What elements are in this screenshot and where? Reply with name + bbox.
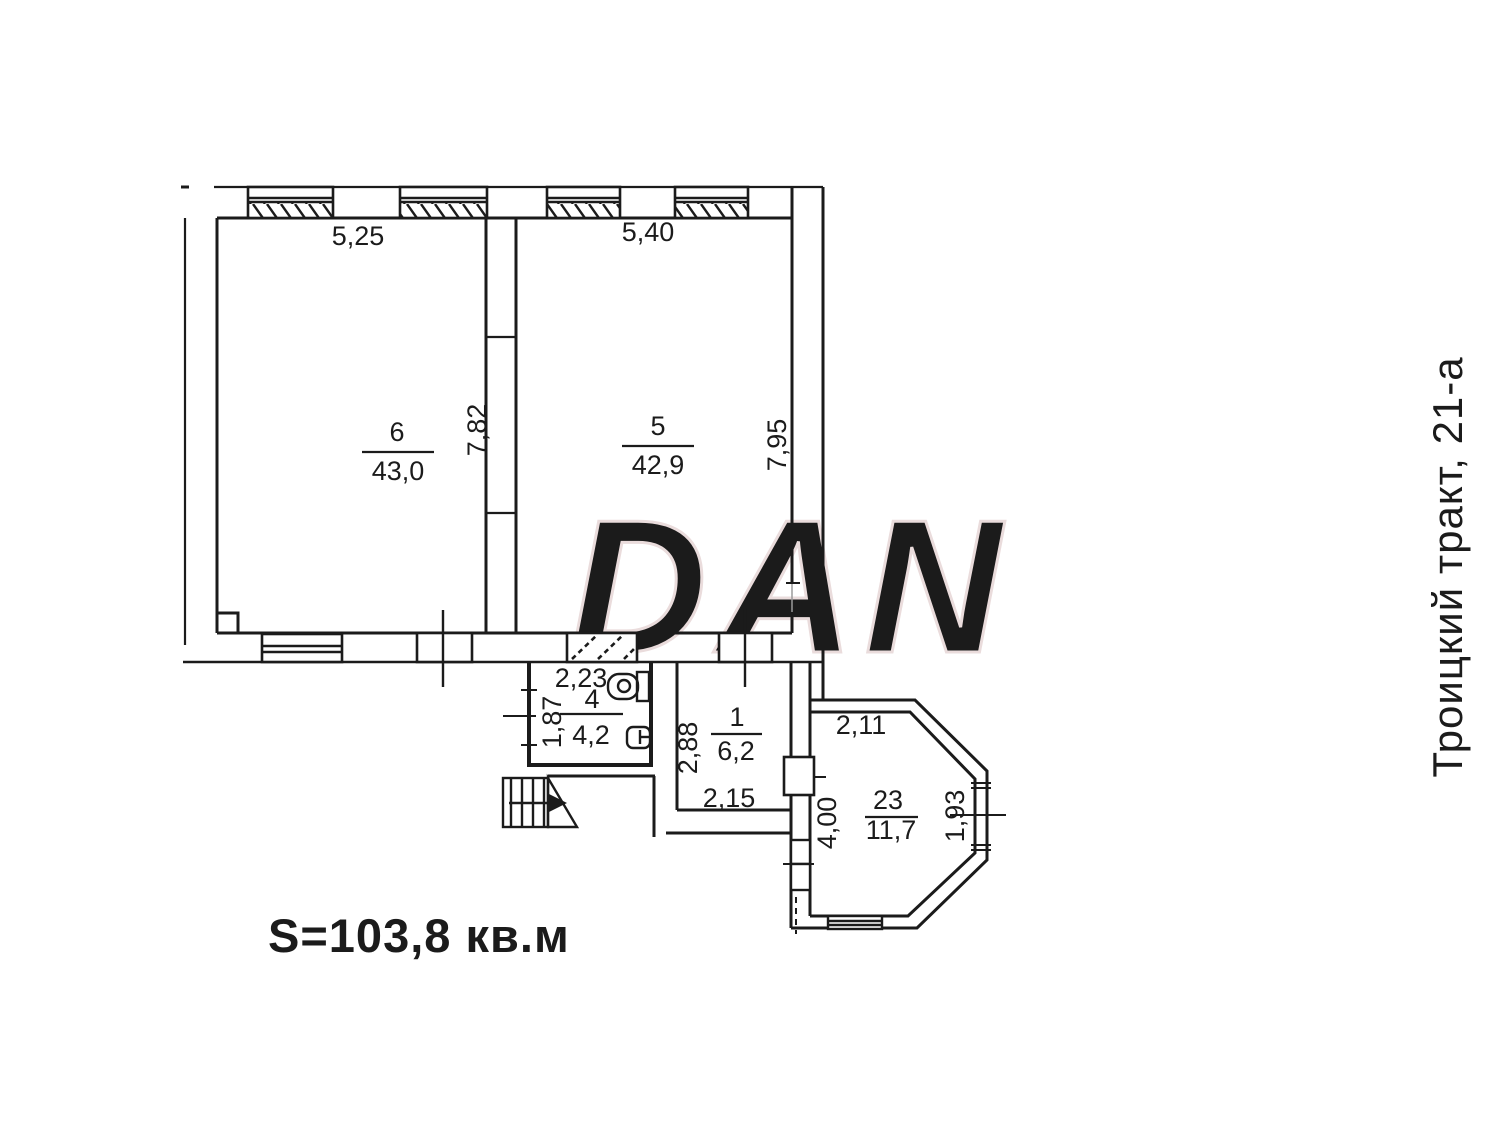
door-icon xyxy=(417,610,472,687)
window-icon xyxy=(675,187,748,218)
room23-left-dimension: 4,00 xyxy=(812,797,842,850)
room1-side-dimension: 2,88 xyxy=(673,722,703,775)
room6-side-dimension: 7,82 xyxy=(462,404,492,457)
sink-icon xyxy=(627,727,650,748)
room6-corner-notch xyxy=(217,613,238,633)
room6-area: 43,0 xyxy=(372,456,425,486)
bay-left-window-icon xyxy=(783,840,814,890)
room5-area: 42,9 xyxy=(632,450,685,480)
room23-right-dimension: 1,93 xyxy=(940,790,970,843)
room5-top-dimension: 5,40 xyxy=(622,217,675,247)
bay-bottom-window-icon xyxy=(828,916,882,929)
room6-number: 6 xyxy=(389,417,404,447)
room23-number: 23 xyxy=(873,785,903,815)
facade-windows-top xyxy=(248,187,748,218)
room5-number: 5 xyxy=(650,411,665,441)
total-area-label: S=103,8 кв.м xyxy=(268,909,570,962)
window-icon xyxy=(248,187,333,218)
room5-side-dimension: 7,95 xyxy=(762,419,792,472)
room1-area: 6,2 xyxy=(717,736,755,766)
window-icon xyxy=(400,187,487,218)
door-threshold-icon xyxy=(784,757,814,795)
staircase xyxy=(503,778,577,827)
window-icon xyxy=(262,634,342,662)
room4-side-dimension: 1,87 xyxy=(537,696,567,749)
room6-top-dimension: 5,25 xyxy=(332,221,385,251)
window-icon xyxy=(547,187,620,218)
floorplan-page: DAN xyxy=(0,0,1500,1125)
room4-area: 4,2 xyxy=(572,720,610,750)
room1-number: 1 xyxy=(729,702,744,732)
hatched-doorway-icon xyxy=(567,633,637,662)
room4-number: 4 xyxy=(584,684,599,714)
room1-bottom-dimension: 2,15 xyxy=(703,783,756,813)
street-address-label: Троицкий тракт, 21-а xyxy=(1424,356,1471,777)
floor-plan-canvas: DAN xyxy=(0,0,1500,1125)
room23-area: 11,7 xyxy=(866,815,917,845)
room23-top-dimension: 2,11 xyxy=(836,710,887,740)
